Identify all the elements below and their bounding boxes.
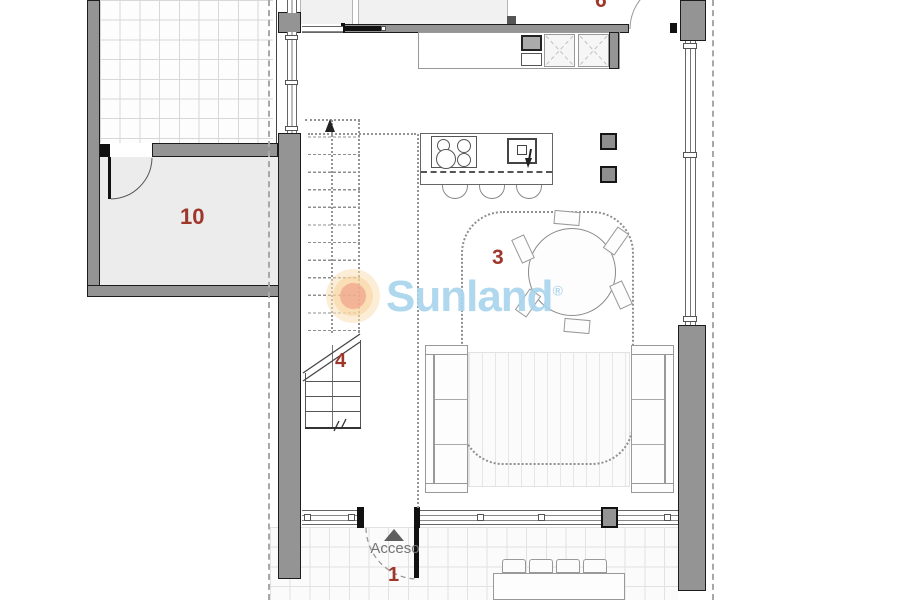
terrace-edge-line	[276, 0, 277, 143]
window-tick	[285, 35, 298, 40]
overhang-dotted-v	[417, 134, 419, 508]
sofa-cushion-line	[632, 444, 664, 445]
window-right	[685, 41, 696, 325]
outdoor-chair	[529, 559, 553, 573]
hob-burner	[457, 153, 471, 167]
outdoor-table	[493, 573, 625, 600]
outdoor-chair	[502, 559, 526, 573]
stair-tread	[305, 381, 360, 382]
outdoor-chair	[556, 559, 580, 573]
sofa-back-line	[664, 354, 666, 484]
sofa-right	[631, 345, 674, 493]
upper-room-right	[358, 0, 508, 24]
room-label-1: 1	[388, 565, 399, 585]
room-label-4: 4	[335, 351, 346, 371]
stairs-center-line	[332, 345, 333, 428]
sofa-armrest-line	[632, 354, 673, 355]
stairs-up-arrow-icon	[325, 119, 335, 132]
window-tick	[348, 514, 355, 521]
counter-wall-stub	[609, 32, 619, 69]
sliding-door-leaf	[345, 26, 386, 31]
dining-chair	[563, 318, 590, 334]
hob-burner	[436, 149, 456, 169]
terrace-top-left	[100, 0, 273, 143]
plot-boundary-right	[712, 0, 714, 600]
room10-door-leaf	[108, 157, 111, 199]
entrance-jamb-left	[357, 507, 364, 528]
bar-stool	[516, 185, 542, 199]
window-tick	[477, 514, 484, 521]
room-label-3: 3	[492, 247, 504, 268]
window-post	[601, 507, 618, 528]
window-tick	[304, 514, 311, 521]
column-block	[600, 166, 617, 183]
door-jamb	[100, 144, 110, 157]
bar-stool	[442, 185, 468, 199]
sofa-armrest-line	[632, 483, 673, 484]
stairs-break-ticks	[334, 419, 346, 431]
room-label-10: 10	[180, 206, 204, 228]
sofa-cushion-line	[632, 399, 664, 400]
island-front-dashed	[421, 171, 552, 173]
hob-burner	[457, 139, 471, 153]
window-tick	[683, 316, 697, 322]
plot-boundary-left	[268, 0, 270, 600]
window-tick	[683, 43, 697, 49]
sofa-cushion-line	[435, 399, 467, 400]
floorplan-canvas: Acceso 10 3 4 1 6 Sunland®	[0, 0, 900, 600]
sofa-cushion-line	[435, 444, 467, 445]
window-tick	[285, 126, 298, 131]
room-label-partial-top: 6	[595, 0, 607, 11]
appliance-oven	[544, 34, 575, 67]
bar-stool	[479, 185, 505, 199]
dining-chair	[553, 210, 580, 226]
stair-tread	[305, 396, 360, 397]
wall-center-main	[278, 133, 301, 579]
island-sink-basin	[517, 145, 527, 155]
overhang-dotted-h	[308, 133, 416, 135]
dining-table	[528, 228, 616, 316]
appliance-dishwasher	[578, 34, 609, 67]
wall-center-upper-block	[278, 12, 301, 33]
window-tick	[683, 152, 697, 158]
window-top-small	[302, 26, 343, 33]
stairs-upper-dotted	[306, 120, 360, 332]
stairs-stringer-dotted	[331, 120, 333, 333]
stairs-lower-edge	[360, 340, 361, 428]
stair-tread	[305, 427, 361, 429]
counter-sink-drainer	[521, 53, 542, 66]
pillar-bottom-right	[678, 325, 706, 591]
window-tick	[538, 514, 545, 521]
stairs-stringer-dotted	[358, 120, 360, 333]
upper-room-left	[300, 0, 353, 24]
sofa-left	[425, 345, 468, 493]
pillar-top-right	[680, 0, 706, 41]
counter-sink	[521, 35, 542, 51]
door-jamb-top-right	[670, 23, 677, 33]
stair-tread	[305, 411, 360, 412]
window-tick	[285, 80, 298, 85]
outdoor-chair	[583, 559, 607, 573]
entrance-label: Acceso	[360, 541, 430, 556]
window-left-upper	[287, 0, 297, 13]
window-bottom-mid-seg	[420, 510, 601, 525]
sliding-door-handle	[381, 26, 386, 31]
window-tick	[664, 514, 671, 521]
wall-left-outer	[87, 0, 100, 297]
sofa-back-line	[433, 354, 435, 484]
column-block	[600, 133, 617, 150]
wall-room10-top	[152, 143, 278, 157]
